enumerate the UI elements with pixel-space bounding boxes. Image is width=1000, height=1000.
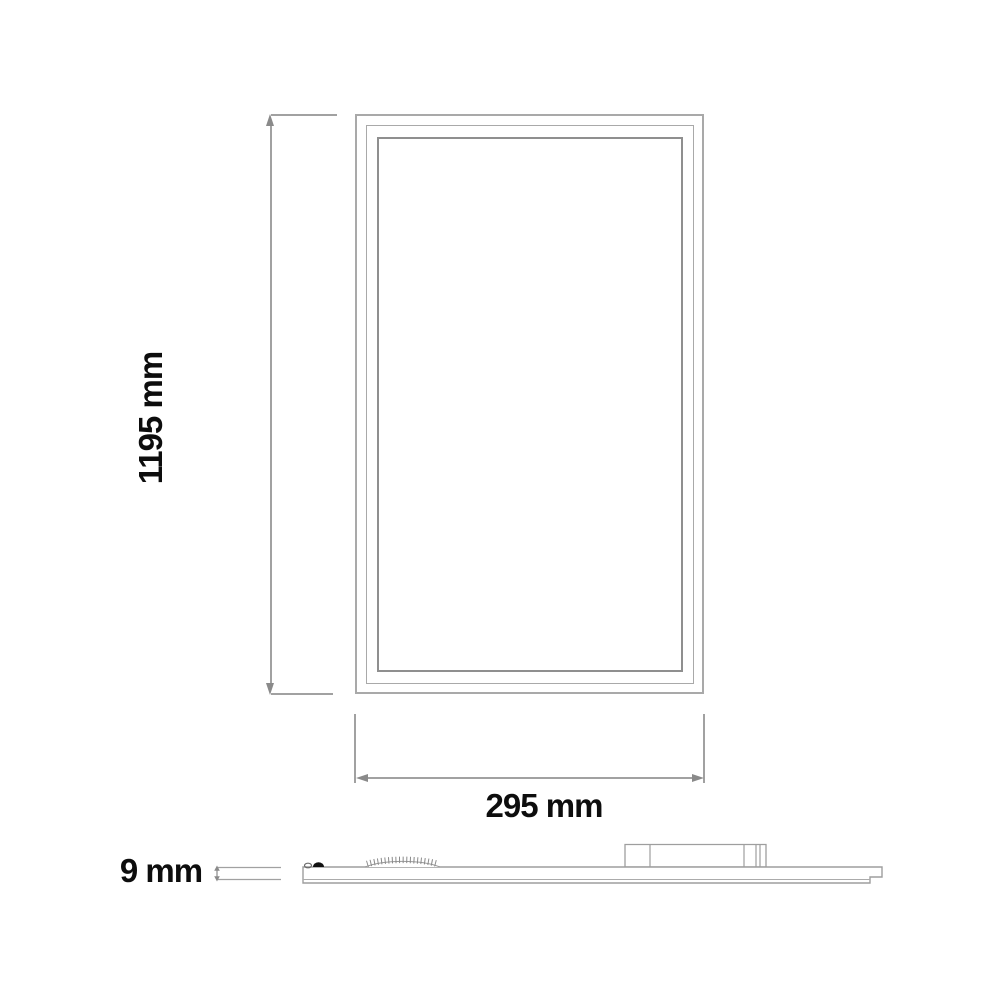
led-panel-dimension-drawing: 1195 mm 295 mm 9 mm xyxy=(0,0,1000,1000)
height-extension-line-top xyxy=(271,114,337,116)
arrow-up-icon xyxy=(266,114,274,126)
panel-diffuser-area xyxy=(377,137,683,672)
width-dimension-line xyxy=(364,777,695,779)
thickness-dimension-label: 9 mm xyxy=(120,852,202,890)
height-dimension-line xyxy=(270,121,272,689)
arrow-down-icon xyxy=(266,683,274,695)
panel-side-view xyxy=(200,838,890,890)
panel-slab-profile xyxy=(303,867,882,883)
clip-knob-icon xyxy=(313,862,324,867)
height-extension-line-bottom xyxy=(271,693,333,695)
arrow-right-icon xyxy=(692,774,704,782)
arrow-left-icon xyxy=(356,774,368,782)
height-dimension-label: 1195 mm xyxy=(132,352,170,484)
width-dimension-label: 295 mm xyxy=(486,787,603,825)
driver-box xyxy=(625,845,766,868)
